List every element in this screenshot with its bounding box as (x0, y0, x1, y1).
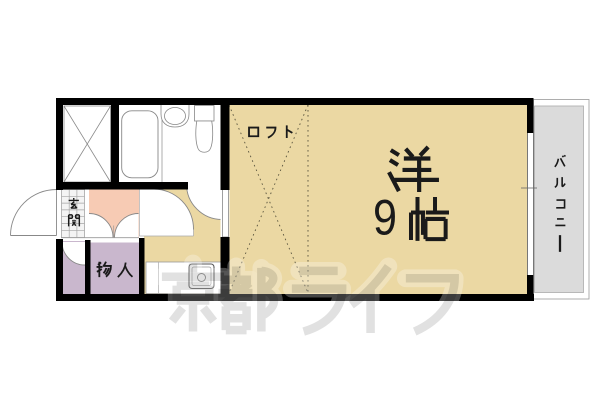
svg-text:9: 9 (373, 190, 397, 246)
